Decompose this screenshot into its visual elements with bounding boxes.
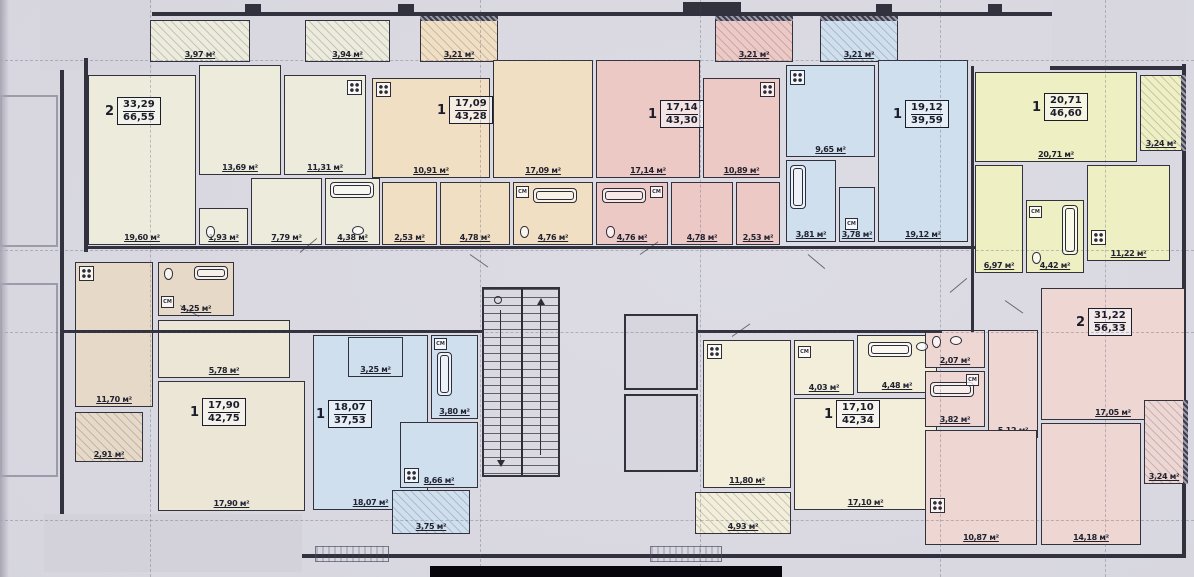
- outline-notch: [1052, 0, 1186, 64]
- apartment-areas: 17,1042,34: [836, 400, 880, 428]
- area-label: 10,87 м²: [963, 533, 999, 544]
- apartment-type: 1: [824, 407, 833, 422]
- area-label: 8,66 м²: [424, 476, 454, 487]
- bathtub-icon: [194, 266, 228, 280]
- area-label: 20,71 м²: [1038, 150, 1074, 161]
- axis-line: [150, 0, 151, 577]
- apartment-3-label: 1 17,1443,30: [648, 100, 704, 128]
- apartment-type: 2: [105, 104, 114, 119]
- toilet-icon: [164, 268, 173, 280]
- apartment-3-balcony: 3,21 м²: [715, 20, 793, 62]
- axis-line: [700, 0, 701, 577]
- bathtub-icon: [330, 182, 374, 198]
- area-label: 3,82 м²: [940, 415, 970, 426]
- washer-label: СМ: [1031, 209, 1040, 215]
- washing-machine-icon: СМ: [434, 338, 447, 350]
- page-edge-shadow: [0, 0, 9, 577]
- area-label: 4,76 м²: [617, 233, 647, 244]
- area-label: 3,24 м²: [1146, 139, 1176, 150]
- apartment-8-kitchen: 11,80 м²: [703, 340, 791, 488]
- washing-machine-icon: СМ: [798, 346, 811, 358]
- outline-notch: [44, 514, 302, 572]
- area-label: 11,70 м²: [96, 395, 132, 406]
- apartment-8-label: 1 17,1042,34: [824, 400, 880, 428]
- stove-icon: [790, 70, 805, 85]
- area-label: 9,65 м²: [815, 145, 845, 156]
- apartment-type: 1: [648, 107, 657, 122]
- washer-label: СМ: [518, 189, 527, 195]
- apartment-2-living: 17,09 м²: [493, 60, 593, 178]
- bathtub-icon: [533, 188, 577, 203]
- area-label: 4,38 м²: [337, 233, 367, 244]
- bathtub-icon: [868, 342, 912, 357]
- washer-label: СМ: [847, 221, 856, 227]
- apartment-8-balcony: 4,93 м²: [695, 492, 791, 534]
- facade-stub: [398, 4, 414, 14]
- apartment-9-kitchen: 10,87 м²: [925, 430, 1037, 545]
- area-label: 3,80 м²: [439, 407, 469, 418]
- toilet-icon: [1032, 252, 1041, 264]
- apartment-2-balcony: 3,21 м²: [420, 20, 498, 62]
- area-label: 3,81 м²: [796, 230, 826, 241]
- apartment-3-hall: 4,78 м²: [671, 182, 733, 245]
- stove-icon: [347, 80, 362, 95]
- washer-label: СМ: [800, 349, 809, 355]
- area-label: 2,07 м²: [940, 356, 970, 367]
- area-label: 3,75 м²: [416, 522, 446, 533]
- apartment-7-label: 1 18,0737,53: [316, 400, 372, 428]
- area-label: 2,53 м²: [394, 233, 424, 244]
- area-label: 3,78 м²: [842, 230, 872, 241]
- apartment-5-kitchen: 11,22 м²: [1087, 165, 1170, 261]
- bathtub-icon: [790, 165, 806, 209]
- area-label: 11,80 м²: [729, 476, 765, 487]
- washing-machine-icon: СМ: [845, 218, 858, 230]
- axis-line: [0, 520, 1194, 521]
- area-label: 2,91 м²: [94, 450, 124, 461]
- staircase: [482, 287, 560, 477]
- apartment-7-balcony: 3,75 м²: [392, 490, 470, 534]
- area-label: 10,89 м²: [724, 166, 760, 177]
- apartment-1-hall: 7,79 м²: [251, 178, 322, 245]
- sink-icon: [916, 342, 928, 351]
- facade-stub: [876, 4, 892, 14]
- axis-line: [0, 60, 1194, 61]
- corridor-wall: [971, 66, 974, 332]
- area-label: 4,78 м²: [687, 233, 717, 244]
- apartment-2-wardrobe: 2,53 м²: [382, 182, 437, 245]
- toilet-icon: [206, 226, 215, 238]
- washing-machine-icon: СМ: [650, 186, 663, 198]
- area-label: 4,76 м²: [538, 233, 568, 244]
- washer-label: СМ: [968, 377, 977, 383]
- apartment-type: 1: [437, 103, 446, 118]
- apartment-4-living: 19,12 м²: [878, 60, 968, 242]
- apartment-type: 2: [1076, 315, 1085, 330]
- apartment-areas: 19,1239,59: [905, 100, 949, 128]
- area-label: 4,48 м²: [882, 381, 912, 392]
- facade-balcony-mark: [650, 546, 722, 562]
- stair-up-arrow-icon: [540, 305, 541, 455]
- toilet-icon: [606, 226, 615, 238]
- apartment-areas: 33,2966,55: [117, 97, 161, 125]
- apartment-5-hall: 6,97 м²: [975, 165, 1023, 273]
- stove-icon: [930, 498, 945, 513]
- area-label: 4,93 м²: [728, 522, 758, 533]
- apartment-7-hall: 3,25 м²: [348, 337, 403, 377]
- area-label: 17,10 м²: [848, 498, 884, 509]
- stair-start-marker: [494, 296, 502, 304]
- facade-stub: [988, 4, 1002, 14]
- apartment-1-balcony-2: 3,94 м²: [305, 20, 390, 62]
- apartment-areas: 17,1443,30: [660, 100, 704, 128]
- stove-icon: [376, 82, 391, 97]
- exterior-wall: [1050, 66, 1186, 70]
- area-label: 18,07 м²: [353, 498, 389, 509]
- area-label: 7,79 м²: [271, 233, 301, 244]
- apartment-areas: 17,9042,75: [202, 398, 246, 426]
- toilet-icon: [520, 226, 529, 238]
- axis-line: [480, 0, 481, 577]
- washing-machine-icon: СМ: [161, 296, 174, 308]
- area-label: 19,12 м²: [905, 230, 941, 241]
- area-label: 2,53 м²: [743, 233, 773, 244]
- bathtub-icon: [437, 352, 452, 396]
- area-label: 14,18 м²: [1073, 533, 1109, 544]
- washer-label: СМ: [436, 341, 445, 347]
- area-label: 11,31 м²: [307, 163, 343, 174]
- stove-icon: [760, 82, 775, 97]
- apartment-4-hall: 3,78 м²: [839, 187, 875, 242]
- area-label: 4,42 м²: [1040, 261, 1070, 272]
- apartment-9-bedroom: 14,18 м²: [1041, 423, 1141, 545]
- sink-icon: [352, 226, 364, 235]
- stove-icon: [79, 266, 94, 281]
- apartment-type: 1: [1032, 100, 1041, 115]
- facade-stub: [245, 4, 261, 14]
- apartment-6-hall: 5,78 м²: [158, 320, 290, 378]
- apartment-5-label: 1 20,7146,60: [1032, 93, 1088, 121]
- elevator-shaft-1: [624, 314, 698, 390]
- stove-icon: [404, 468, 419, 483]
- washing-machine-icon: СМ: [966, 374, 979, 386]
- bathtub-icon: [1062, 205, 1078, 255]
- axis-line: [0, 332, 1194, 333]
- axis-line: [0, 250, 1194, 251]
- area-label: 3,24 м²: [1149, 472, 1179, 483]
- apartment-type: 1: [316, 407, 325, 422]
- area-label: 17,05 м²: [1095, 408, 1131, 419]
- apartment-6-balcony: 2,91 м²: [75, 412, 143, 462]
- stove-icon: [1091, 230, 1106, 245]
- area-label: 10,91 м²: [413, 166, 449, 177]
- apartment-9-balcony: 3,24 м²: [1144, 400, 1184, 484]
- apartment-type: 1: [893, 107, 902, 122]
- washer-label: СМ: [163, 299, 172, 305]
- area-label: 4,78 м²: [460, 233, 490, 244]
- exterior-wall: [84, 58, 88, 252]
- apartment-6-kitchen: 11,70 м²: [75, 262, 153, 407]
- facade-balcony-mark: [315, 546, 389, 562]
- stove-icon: [707, 344, 722, 359]
- apartment-1-balcony-1: 3,97 м²: [150, 20, 250, 62]
- apartment-areas: 17,0943,28: [449, 96, 493, 124]
- corridor-wall: [84, 246, 976, 249]
- bottom-black-bar: [430, 566, 782, 577]
- axis-line: [1105, 0, 1106, 577]
- apartment-2-label: 1 17,0943,28: [437, 96, 493, 124]
- area-label: 13,69 м²: [222, 163, 258, 174]
- area-label: 5,78 м²: [209, 366, 239, 377]
- washing-machine-icon: СМ: [516, 186, 529, 198]
- apartment-1-bedroom: 13,69 м²: [199, 65, 281, 175]
- apartment-areas: 20,7146,60: [1044, 93, 1088, 121]
- floor-plan: 3,97 м² 3,94 м² 19,60 м² 13,69 м² 11,31 …: [0, 0, 1194, 577]
- apartment-6-label: 1 17,9042,75: [190, 398, 246, 426]
- area-label: 3,25 м²: [360, 365, 390, 376]
- area-label: 19,60 м²: [124, 233, 160, 244]
- washing-machine-icon: СМ: [1029, 206, 1042, 218]
- apartment-5-balcony: 3,24 м²: [1140, 75, 1182, 151]
- apartment-9-hall: 5,12 м²: [988, 330, 1038, 438]
- area-label: 17,09 м²: [525, 166, 561, 177]
- apartment-3-wardrobe: 2,53 м²: [736, 182, 780, 245]
- apartment-2-hall: 4,78 м²: [440, 182, 510, 245]
- apartment-4-balcony: 3,21 м²: [820, 20, 898, 62]
- bathtub-icon: [602, 188, 646, 203]
- area-label: 17,90 м²: [214, 499, 250, 510]
- area-label: 6,97 м²: [984, 261, 1014, 272]
- area-label: 17,14 м²: [630, 166, 666, 177]
- apartment-areas: 18,0737,53: [328, 400, 372, 428]
- area-label: 4,03 м²: [809, 383, 839, 394]
- apartment-1-label: 2 33,2966,55: [105, 97, 161, 125]
- elevator-shaft-2: [624, 394, 698, 472]
- axis-line: [940, 0, 941, 577]
- apartment-type: 1: [190, 405, 199, 420]
- sink-icon: [950, 336, 962, 345]
- facade-stub: [683, 2, 741, 14]
- washer-label: СМ: [652, 189, 661, 195]
